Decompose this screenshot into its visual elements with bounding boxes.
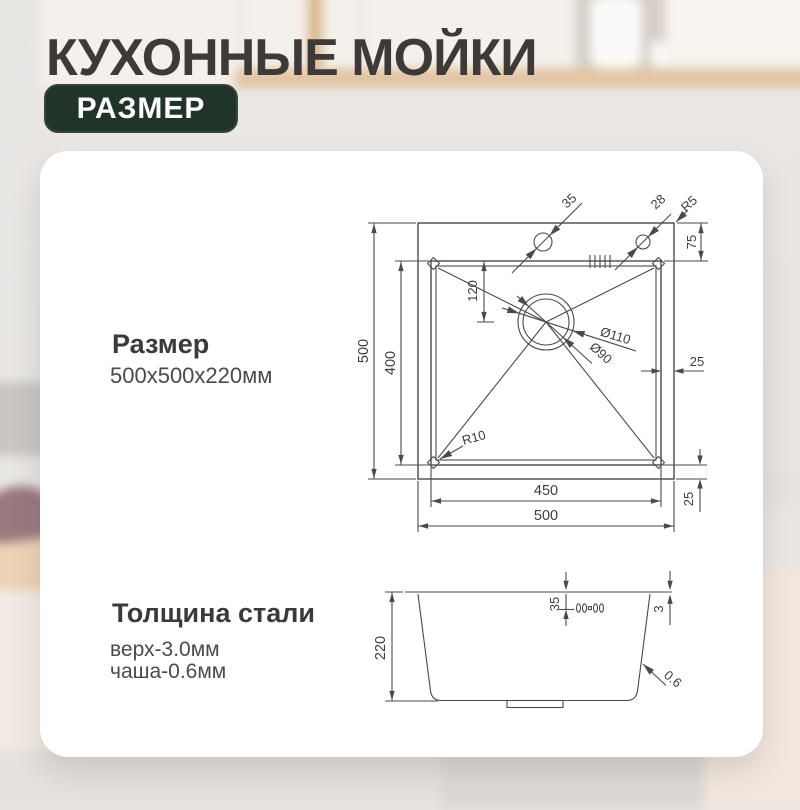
dim-wall-thickness: 0.6: [643, 664, 685, 690]
svg-text:75: 75: [684, 235, 699, 249]
dim-deck-width: 75: [664, 223, 708, 261]
svg-text:Ø110: Ø110: [598, 324, 632, 347]
svg-text:25: 25: [690, 354, 704, 369]
dim-corner-radius-bowl: R10: [440, 427, 487, 459]
svg-text:35: 35: [559, 190, 580, 211]
dim-edge-right: 25: [641, 354, 704, 374]
technical-drawing: 35 28 R5 75 120: [0, 0, 800, 800]
svg-text:R10: R10: [460, 427, 487, 448]
svg-text:25: 25: [681, 492, 696, 506]
dim-faucet-hole-right: 28: [615, 191, 671, 270]
dim-side-height: 220: [373, 592, 438, 701]
bowl-profile: [418, 594, 650, 701]
svg-text:400: 400: [383, 351, 399, 375]
sink-top-view: 35 28 R5 75 120: [356, 190, 708, 532]
dim-inner-width: 450: [431, 467, 661, 507]
svg-text:220: 220: [373, 636, 389, 660]
drain-flange: [507, 701, 563, 708]
svg-text:R5: R5: [678, 193, 700, 215]
sink-side-view: 220 35 3 0: [373, 571, 685, 708]
overflow-holes-icon: [577, 604, 604, 612]
dim-overflow-offset: 35: [547, 572, 574, 626]
dim-edge-bottom: 25: [663, 449, 707, 512]
dim-deck-thickness: 3: [651, 571, 673, 625]
dim-drain-outer: Ø110: [502, 308, 636, 351]
svg-text:3: 3: [651, 605, 666, 612]
dim-corner-radius-outer: R5: [676, 193, 700, 222]
svg-text:35: 35: [547, 597, 562, 611]
svg-text:0.6: 0.6: [661, 667, 684, 690]
svg-text:120: 120: [465, 280, 480, 302]
svg-text:500: 500: [356, 339, 372, 363]
dim-drain-offset: 120: [465, 261, 494, 322]
svg-text:450: 450: [534, 483, 558, 499]
dim-inner-height: 400: [383, 261, 429, 465]
svg-text:500: 500: [534, 508, 558, 524]
svg-text:28: 28: [648, 191, 669, 212]
page: { "header": { "title": "КУХОННЫЕ МОЙКИ",…: [0, 0, 800, 800]
